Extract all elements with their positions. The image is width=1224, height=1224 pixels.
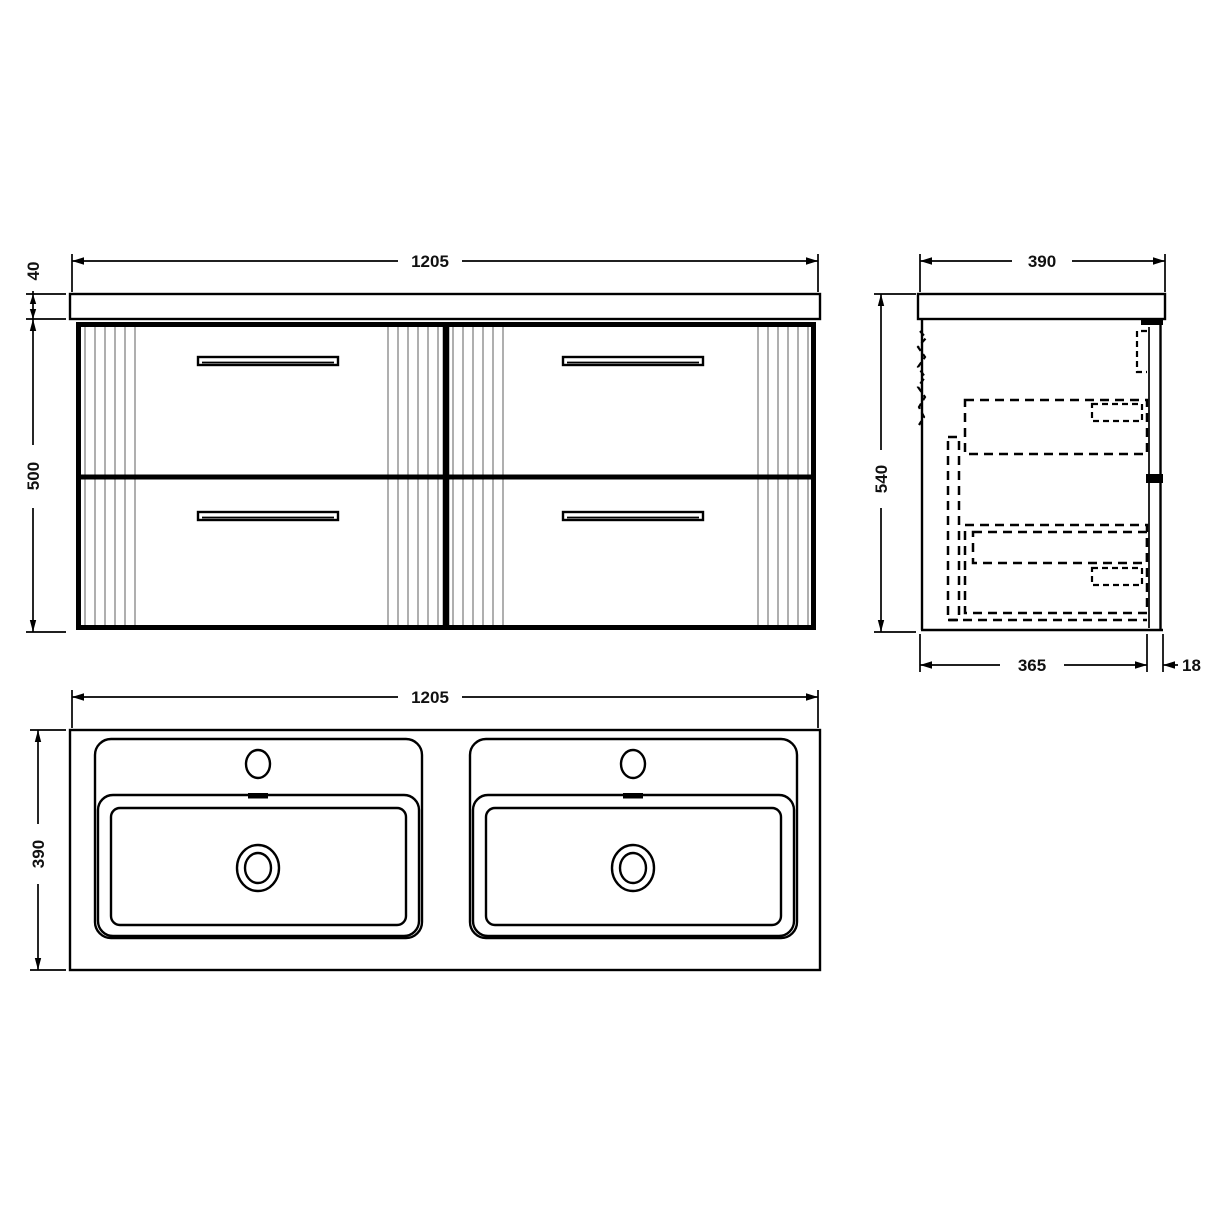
arrow-up-icon — [35, 730, 41, 742]
upper-drawer-runner-hidden — [1092, 404, 1142, 421]
countertop-front — [70, 294, 820, 319]
arrow-left-icon — [1163, 661, 1175, 669]
front-width-label: 1205 — [411, 252, 449, 271]
side-height-dimension: 540 — [872, 294, 916, 632]
arrow-right-icon — [1153, 257, 1165, 265]
arrow-left-icon — [72, 693, 84, 701]
front-height-label: 500 — [24, 462, 43, 490]
arrow-left-icon — [72, 257, 84, 265]
arrow-down-icon — [30, 620, 36, 632]
front-width-dimension: 1205 — [72, 252, 818, 292]
plan-width-label: 1205 — [411, 688, 449, 707]
drawer-handle-upper-right — [563, 357, 703, 365]
side-bottom-dimension: 365 18 — [920, 634, 1201, 675]
side-front-thickness-label: 18 — [1182, 656, 1201, 675]
arrow-up-icon — [30, 294, 36, 304]
side-view: 390 540 — [872, 252, 1201, 675]
side-depth-dimension: 390 — [920, 252, 1165, 292]
overflow-slot — [248, 793, 268, 799]
counter-plan-outline — [70, 730, 820, 970]
drawer-front-gap — [1146, 474, 1163, 483]
plan-depth-label: 390 — [29, 840, 48, 868]
lower-drawer-runner-hidden — [1092, 568, 1142, 585]
arrow-right-icon — [806, 257, 818, 265]
drawer-handle-lower-left — [198, 512, 338, 520]
arrow-down-icon — [30, 309, 36, 319]
arrow-right-icon — [1135, 661, 1147, 669]
front-counter-thickness-label: 40 — [24, 262, 43, 281]
arrow-right-icon — [806, 693, 818, 701]
lower-drawer-box-hidden — [965, 525, 1147, 613]
drawing-canvas: 1205 40 500 — [0, 0, 1224, 1224]
upper-drawer-box-hidden — [965, 400, 1147, 454]
front-height-dimension: 500 — [24, 319, 66, 632]
arrow-left-icon — [920, 257, 932, 265]
arrow-up-icon — [30, 319, 36, 331]
arrow-down-icon — [878, 620, 884, 632]
front-view: 1205 40 500 — [24, 252, 820, 632]
drawer-handle-lower-right — [563, 512, 703, 520]
front-counter-thickness-dimension: 40 — [24, 262, 66, 319]
overflow-slot — [623, 793, 643, 799]
plan-width-dimension: 1205 — [72, 688, 818, 728]
plan-depth-dimension: 390 — [29, 730, 66, 970]
countertop-side — [918, 294, 1165, 319]
front-fixing-bracket-hidden — [1137, 331, 1147, 372]
lower-drawer-side-hidden — [973, 532, 1147, 563]
plan-view: 1205 390 — [29, 688, 820, 970]
side-depth-label: 390 — [1028, 252, 1056, 271]
drawer-handle-upper-left — [198, 357, 338, 365]
arrow-up-icon — [878, 294, 884, 306]
drawer-back-panel-hidden — [948, 437, 959, 620]
side-carcass-depth-label: 365 — [1018, 656, 1046, 675]
technical-drawing: 1205 40 500 — [0, 0, 1224, 1224]
side-height-label: 540 — [872, 465, 891, 493]
arrow-left-icon — [920, 661, 932, 669]
arrow-down-icon — [35, 958, 41, 970]
